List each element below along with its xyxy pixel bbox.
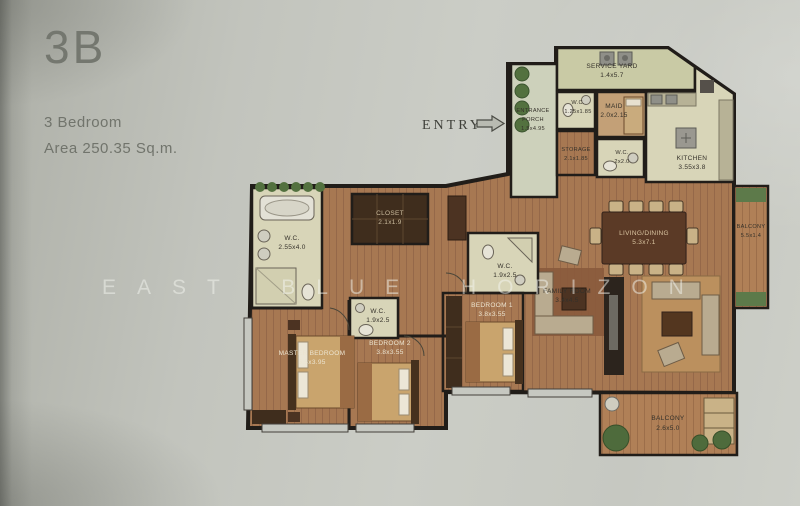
floor-plan: ENTRY: [0, 0, 800, 506]
room-dims: 1.9x2.5: [366, 317, 390, 324]
basin: [356, 304, 365, 313]
dining-set: [590, 201, 698, 275]
storage-room: [557, 131, 595, 175]
plant: [692, 435, 708, 451]
headboard: [515, 320, 523, 384]
room-label: W.C.: [284, 235, 299, 242]
brochure-page: 3B 3 Bedroom Area 250.35 Sq.m. ENTRY: [0, 0, 800, 506]
headboard: [288, 334, 296, 410]
room-label: BALCONY: [651, 415, 685, 422]
watermark: EAST BLUE HORIZON: [102, 276, 705, 300]
room-label: LIVING/DINING: [619, 230, 669, 237]
room-dims: 3.8x3.55: [478, 311, 505, 318]
room-dims: 1.5x4.95: [521, 126, 545, 132]
room-dims: 5.5x1.4: [741, 233, 761, 239]
entry-label: ENTRY: [422, 118, 483, 133]
room-dims: 2.1x1.9: [378, 219, 402, 226]
pillow: [399, 369, 409, 390]
room-dims: 2.6x5.0: [656, 425, 680, 432]
pillow: [399, 394, 409, 415]
room-dims: 3.8x3.55: [376, 349, 403, 356]
room-label: KITCHEN: [677, 155, 708, 162]
dining-table: [602, 212, 686, 264]
room-label: STORAGE: [561, 147, 590, 153]
room-label: W.C.: [370, 308, 385, 315]
balcony-east: [734, 186, 768, 308]
pillow: [626, 99, 641, 106]
room-label: W.C.: [497, 263, 512, 270]
fridge: [700, 80, 714, 93]
planter: [736, 292, 766, 306]
sofa: [702, 295, 719, 355]
coffee-table: [662, 312, 692, 336]
plant: [515, 67, 529, 81]
room-label: PORCH: [522, 117, 544, 123]
nightstand: [288, 412, 300, 422]
nightstand: [288, 320, 300, 330]
room-dims: 2.55x4.0: [278, 244, 305, 251]
room-dims: 1.4x5.7: [600, 72, 624, 79]
basin: [258, 230, 270, 242]
wardrobe: [446, 296, 462, 388]
entry-callout: ENTRY: [422, 116, 504, 133]
room-label: CLOSET: [376, 210, 404, 217]
room-label: BEDROOM 1: [471, 302, 513, 309]
room-label: MAID: [605, 103, 622, 110]
hall-cabinet: [448, 196, 466, 240]
pillow: [503, 354, 513, 376]
round-table: [605, 397, 619, 411]
pillow: [298, 372, 308, 398]
room-dims: 5.5x3.95: [298, 359, 325, 366]
room-label: SERVICE YARD: [586, 63, 637, 70]
room-label: W.C.: [615, 150, 628, 156]
room-dims: 2x2.0: [614, 159, 629, 165]
balcony-south: [600, 393, 737, 455]
room-dims: 5.3x7.1: [632, 239, 656, 246]
plant: [515, 84, 529, 98]
room-label: W.C.: [571, 100, 584, 106]
blanket: [358, 363, 372, 421]
dresser: [252, 410, 286, 424]
sofa: [535, 316, 593, 334]
plant: [603, 425, 629, 451]
room-label: ENTRANCE: [516, 108, 549, 114]
room-dims: 3.55x3.8: [678, 164, 705, 171]
pillow: [503, 328, 513, 350]
basin: [258, 248, 270, 260]
room-label: BALCONY: [737, 224, 766, 230]
counter: [719, 100, 733, 180]
sink: [651, 95, 662, 104]
room-dims: 2.0x2.15: [600, 112, 627, 119]
room-dims: 1.25x1.85: [564, 109, 591, 115]
bedroom2-furniture: [358, 360, 419, 424]
stove: [666, 95, 677, 104]
room-dims: 2.1x1.85: [564, 156, 588, 162]
toilet: [359, 325, 373, 336]
blanket: [340, 336, 354, 408]
headboard: [411, 360, 419, 424]
toilet: [483, 245, 494, 259]
room-label: MASTER BEDROOM: [279, 350, 346, 357]
room-label: BEDROOM 2: [369, 340, 411, 347]
planter: [736, 188, 766, 202]
plant: [713, 431, 731, 449]
wc-kitchen-room: [597, 139, 644, 177]
blanket: [466, 322, 480, 382]
